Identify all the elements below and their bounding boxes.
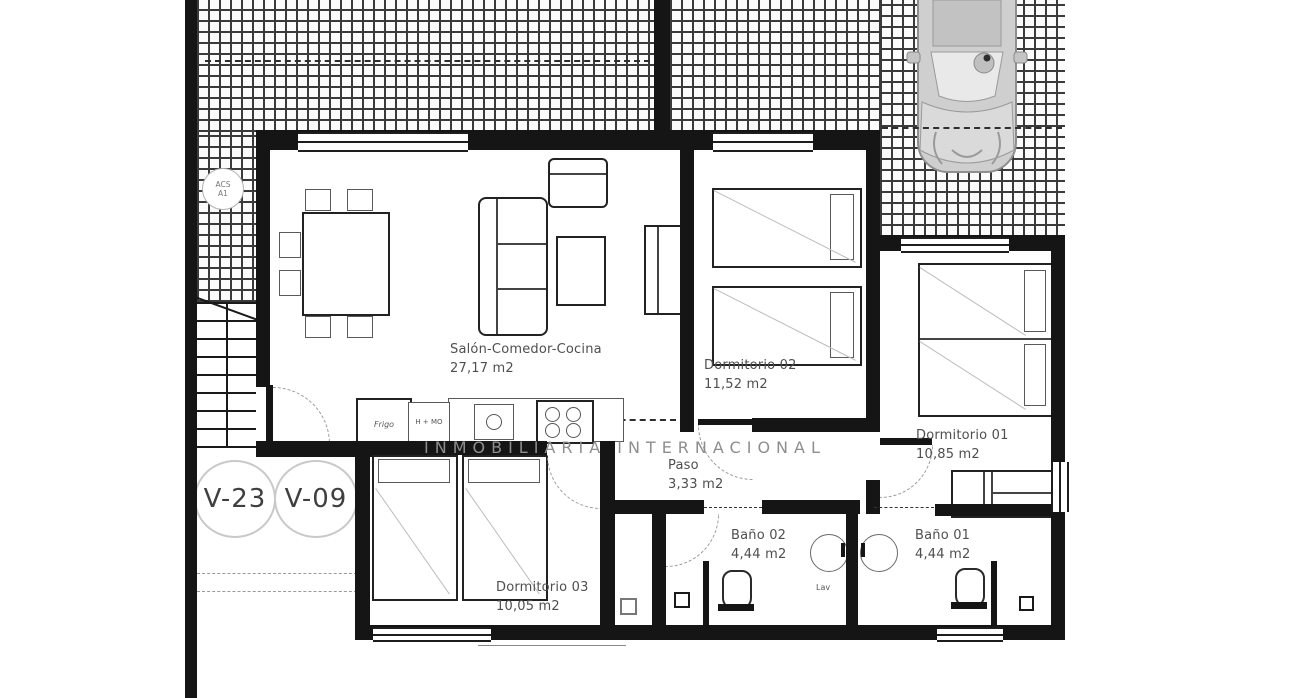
pillow bbox=[1024, 344, 1046, 406]
window-circle-v23: V-23 bbox=[194, 460, 276, 538]
dining-chair bbox=[279, 270, 301, 296]
window bbox=[901, 237, 1009, 253]
v09-label: V-09 bbox=[285, 484, 348, 514]
wall bbox=[680, 150, 694, 432]
room-label-dorm03: Dormitorio 03 10,05 m2 bbox=[496, 579, 589, 617]
wall bbox=[185, 0, 197, 698]
room-area: 4,44 m2 bbox=[915, 546, 970, 565]
floor-drain bbox=[620, 598, 637, 615]
room-area: 27,17 m2 bbox=[450, 360, 602, 379]
kitchen-sink bbox=[474, 404, 514, 440]
wall bbox=[652, 500, 704, 514]
dashed-line-driveway bbox=[882, 127, 1062, 129]
room-label-bano02: Baño 02 4,44 m2 bbox=[731, 527, 786, 565]
door-leaf-entry bbox=[266, 385, 273, 443]
porch-step-line bbox=[478, 645, 626, 646]
room-name: Dormitorio 01 bbox=[916, 427, 1009, 446]
hatch-area-top-left bbox=[197, 0, 654, 132]
dining-chair bbox=[305, 189, 331, 211]
window bbox=[298, 132, 468, 152]
room-name: Dormitorio 02 bbox=[704, 357, 797, 376]
acs-label-line2: A1 bbox=[218, 189, 228, 198]
window bbox=[713, 132, 813, 152]
window-circle-v09: V-09 bbox=[274, 460, 358, 538]
oven-microwave: H + MO bbox=[408, 402, 450, 442]
floor-plan: ACS A1 V-23 V-09 bbox=[0, 0, 1290, 698]
coffee-table bbox=[556, 236, 606, 306]
door-leaf-dorm02 bbox=[698, 419, 752, 425]
oven-microwave-label: H + MO bbox=[415, 418, 442, 426]
dining-chair bbox=[279, 232, 301, 258]
washbasin bbox=[860, 534, 898, 572]
room-label-bano01: Baño 01 4,44 m2 bbox=[915, 527, 970, 565]
wall bbox=[600, 441, 615, 640]
floor-drain bbox=[674, 592, 690, 608]
pillow bbox=[1024, 270, 1046, 332]
wall bbox=[355, 441, 370, 640]
door-arc-dorm03 bbox=[547, 455, 601, 509]
dashed-line-porch-2 bbox=[197, 591, 357, 592]
dashed-line-porch-1 bbox=[197, 573, 357, 574]
wall-partition bbox=[703, 561, 709, 625]
room-label-dorm02: Dormitorio 02 11,52 m2 bbox=[704, 357, 797, 395]
room-area: 4,44 m2 bbox=[731, 546, 786, 565]
door-arc-bano02 bbox=[666, 514, 719, 567]
room-label-salon: Salón-Comedor-Cocina 27,17 m2 bbox=[450, 341, 602, 379]
tv-unit bbox=[644, 225, 684, 315]
room-name: Baño 01 bbox=[915, 527, 970, 546]
door-arc-entry bbox=[273, 387, 330, 444]
wall bbox=[654, 0, 670, 132]
room-area: 10,05 m2 bbox=[496, 598, 589, 617]
armchair bbox=[548, 158, 608, 208]
door-path-bano01 bbox=[874, 507, 934, 508]
dashed-line-terrace bbox=[205, 60, 650, 62]
room-area: 10,85 m2 bbox=[916, 446, 1009, 465]
wall bbox=[866, 150, 880, 432]
wall bbox=[1051, 251, 1065, 640]
dining-table bbox=[302, 212, 390, 316]
room-area: 11,52 m2 bbox=[704, 376, 797, 395]
floor-drain bbox=[1019, 596, 1034, 611]
window bbox=[373, 627, 491, 642]
window bbox=[937, 627, 1003, 642]
pillow bbox=[468, 459, 540, 483]
wall bbox=[652, 514, 666, 640]
washer-label: Lav bbox=[816, 583, 830, 592]
fridge-label: Frigo bbox=[374, 420, 394, 429]
dining-chair bbox=[347, 316, 373, 338]
room-label-paso: Paso 3,33 m2 bbox=[668, 457, 723, 495]
hatch-area-top-mid bbox=[670, 0, 880, 132]
wall bbox=[846, 500, 858, 640]
window bbox=[1051, 462, 1069, 512]
sofa bbox=[478, 197, 548, 336]
room-name: Baño 02 bbox=[731, 527, 786, 546]
agency-watermark: INMOBILIARIA INTERNACIONAL bbox=[424, 438, 826, 457]
v23-label: V-23 bbox=[204, 484, 267, 514]
door-path-bano02 bbox=[704, 507, 762, 508]
wall bbox=[256, 150, 270, 387]
wall bbox=[752, 418, 880, 432]
wall bbox=[935, 504, 1051, 516]
dining-chair bbox=[347, 189, 373, 211]
room-name: Dormitorio 03 bbox=[496, 579, 589, 598]
acs-label-line1: ACS bbox=[216, 180, 231, 189]
room-name: Salón-Comedor-Cocina bbox=[450, 341, 602, 360]
room-name: Paso bbox=[668, 457, 723, 476]
acs-unit: ACS A1 bbox=[202, 168, 244, 210]
dining-chair bbox=[305, 316, 331, 338]
wall-partition bbox=[991, 561, 997, 625]
room-area: 3,33 m2 bbox=[668, 476, 723, 495]
wall bbox=[866, 480, 880, 514]
car bbox=[902, 0, 1032, 180]
hatch-area-left-col bbox=[197, 132, 256, 302]
pillow bbox=[378, 459, 450, 483]
room-label-dorm01: Dormitorio 01 10,85 m2 bbox=[916, 427, 1009, 465]
